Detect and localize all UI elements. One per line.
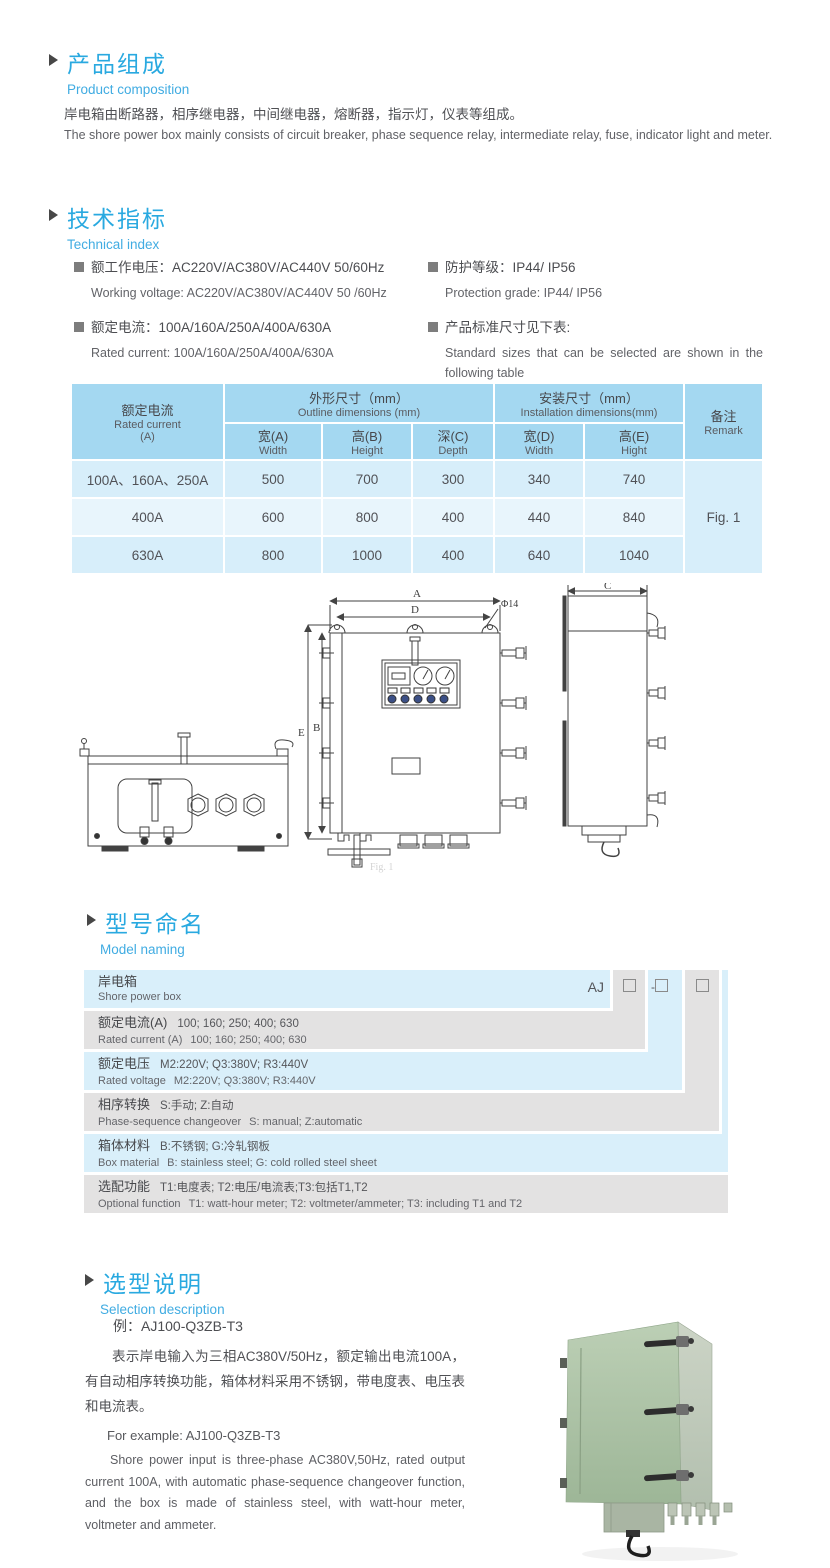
section-arrow-icon bbox=[49, 209, 58, 221]
row-label-en: Optional function bbox=[98, 1198, 181, 1210]
cell-value: 840 bbox=[584, 498, 684, 536]
spec-column-left: 额工作电压：AC220V/AC380V/AC440V 50/60Hz Worki… bbox=[74, 256, 419, 376]
naming-row-rated-current: 额定电流(A)100; 160; 250; 400; 630 Rated cur… bbox=[84, 1011, 645, 1049]
nameplate bbox=[392, 758, 420, 774]
section-title-zh: 选型说明 bbox=[103, 1265, 203, 1299]
header-en: Installation dimensions(mm) bbox=[495, 407, 683, 419]
table-row: 630A 800 1000 400 640 1040 bbox=[71, 536, 763, 574]
bottom-gland bbox=[582, 826, 626, 856]
figure-caption: Fig. 1 bbox=[370, 862, 393, 873]
row-label-en: Phase-sequence changeover bbox=[98, 1116, 241, 1128]
header-en: Height bbox=[323, 445, 411, 457]
meter-panel bbox=[382, 660, 460, 708]
model-code-prefix: AJ bbox=[570, 979, 604, 995]
dim-label-c: C bbox=[604, 583, 611, 592]
datasheet-page: 产品组成 Product composition 岸电箱由断路器，相序继电器，中… bbox=[0, 0, 830, 1568]
front-view-drawing: A D Φ14 E B bbox=[298, 588, 526, 873]
dim-label-a: A bbox=[413, 588, 421, 600]
cell-value: 300 bbox=[412, 460, 494, 498]
sub-header: 高(E)Hight bbox=[584, 423, 684, 460]
row-value-zh: M2:220V; Q3:380V; R3:440V bbox=[160, 1059, 308, 1071]
code-strip bbox=[722, 970, 728, 1134]
dim-label-dia: Φ14 bbox=[501, 599, 518, 610]
section-selection-header: 选型说明 Selection description bbox=[85, 1265, 225, 1317]
row-value-zh: B:不锈钢; G:冷轧钢板 bbox=[160, 1141, 270, 1153]
section-title-zh: 型号命名 bbox=[105, 905, 205, 939]
section-model-naming-header: 型号命名 Model naming bbox=[87, 905, 205, 957]
spec-text: 防护等级：IP44/ IP56 bbox=[445, 260, 576, 275]
col-group-installation: 安装尺寸（mm） Installation dimensions(mm) bbox=[494, 383, 684, 423]
bottom-view-drawing bbox=[80, 733, 293, 851]
code-box-icon bbox=[696, 979, 709, 992]
sub-header: 宽(D)Width bbox=[494, 423, 584, 460]
header-zh: 宽(A) bbox=[225, 426, 321, 445]
spec-item-en: Working voltage: AC220V/AC380V/AC440V 50… bbox=[91, 283, 419, 303]
cell-value: 400 bbox=[412, 536, 494, 574]
composition-body-en: The shore power box mainly consists of c… bbox=[64, 128, 784, 142]
col-group-outline: 外形尺寸（mm） Outline dimensions (mm) bbox=[224, 383, 494, 423]
section-title-en: Selection description bbox=[100, 1302, 225, 1317]
table-row: 400A 600 800 400 440 840 bbox=[71, 498, 763, 536]
model-naming-diagram: 岸电箱 Shore power box 额定电流(A)100; 160; 250… bbox=[84, 970, 728, 1213]
gauge-icon bbox=[414, 667, 432, 685]
sub-header: 宽(A)Width bbox=[224, 423, 322, 460]
clamp-icons bbox=[500, 646, 526, 810]
code-box-icon bbox=[623, 979, 636, 992]
digital-meter-icon bbox=[388, 667, 410, 685]
header-zh: 外形尺寸（mm） bbox=[225, 388, 493, 407]
technical-drawing: A D Φ14 E B bbox=[70, 583, 762, 875]
row-label-en: Shore power box bbox=[98, 990, 610, 1005]
sub-header: 高(B)Height bbox=[322, 423, 412, 460]
bottom-fittings bbox=[328, 833, 469, 867]
header-zh: 安装尺寸（mm） bbox=[495, 388, 683, 407]
bullet-square-icon bbox=[428, 322, 438, 332]
row-value-zh: 100; 160; 250; 400; 630 bbox=[177, 1018, 299, 1030]
row-label-en: Box material bbox=[98, 1157, 159, 1169]
naming-row-rated-voltage: 额定电压M2:220V; Q3:380V; R3:440V Rated volt… bbox=[84, 1052, 682, 1090]
row-label-en: Rated voltage bbox=[98, 1075, 166, 1087]
header-en: Depth bbox=[413, 445, 493, 457]
sub-header: 深(C)Depth bbox=[412, 423, 494, 460]
section-arrow-icon bbox=[49, 54, 58, 66]
section-arrow-icon bbox=[87, 914, 96, 926]
bullet-square-icon bbox=[428, 262, 438, 272]
row-value-zh: T1:电度表; T2:电压/电流表;T3:包括T1,T2 bbox=[160, 1182, 368, 1194]
row-label-zh: 相序转换 bbox=[98, 1097, 150, 1112]
spec-item-zh: 产品标准尺寸见下表: bbox=[428, 316, 762, 336]
dim-label-b: B bbox=[313, 722, 320, 734]
naming-row-optional-function: 选配功能T1:电度表; T2:电压/电流表;T3:包括T1,T2 Optiona… bbox=[84, 1175, 728, 1213]
photo-shadow bbox=[582, 1547, 738, 1561]
spec-item-en: Protection grade: IP44/ IP56 bbox=[445, 283, 762, 303]
row-label-zh: 选配功能 bbox=[98, 1179, 150, 1194]
model-code-slot-3 bbox=[696, 979, 709, 994]
spec-item-zh: 额工作电压：AC220V/AC380V/AC440V 50/60Hz bbox=[74, 256, 419, 276]
selection-body-en: Shore power input is three-phase AC380V,… bbox=[85, 1450, 465, 1536]
spec-item-en: Rated current: 100A/160A/250A/400A/630A bbox=[91, 343, 419, 363]
cell-value: 800 bbox=[322, 498, 412, 536]
indicator-lights bbox=[388, 688, 449, 703]
selection-example-en: For example: AJ100-Q3ZB-T3 bbox=[85, 1428, 465, 1443]
naming-row-product: 岸电箱 Shore power box bbox=[84, 970, 610, 1008]
selection-body-zh: 表示岸电输入为三相AC380V/50Hz，额定输出电流100A，有自动相序转换功… bbox=[85, 1344, 465, 1419]
row-label-en: Rated current (A) bbox=[98, 1034, 182, 1046]
bullet-square-icon bbox=[74, 322, 84, 332]
spec-item-en: Standard sizes that can be selected are … bbox=[445, 343, 763, 383]
door-hinge-icons bbox=[560, 1358, 567, 1488]
table-row: 100A、160A、250A 500 700 300 340 740 Fig. … bbox=[71, 460, 763, 498]
spec-text: 额工作电压：AC220V/AC380V/AC440V 50/60Hz bbox=[91, 260, 384, 275]
cell-current: 400A bbox=[71, 498, 224, 536]
gland-hex-icons bbox=[188, 794, 264, 816]
naming-row-phase-sequence: 相序转换S:手动; Z:自动 Phase-sequence changeover… bbox=[84, 1093, 719, 1131]
cell-current: 100A、160A、250A bbox=[71, 460, 224, 498]
side-view-drawing: C bbox=[563, 583, 665, 856]
cell-value: 700 bbox=[322, 460, 412, 498]
header-zh: 备注 bbox=[685, 406, 762, 425]
cell-value: 1000 bbox=[322, 536, 412, 574]
row-value-zh: S:手动; Z:自动 bbox=[160, 1100, 233, 1112]
header-en: Remark bbox=[685, 425, 762, 437]
header-unit: (A) bbox=[72, 431, 223, 443]
section-title-zh: 产品组成 bbox=[67, 45, 167, 79]
cell-value: 440 bbox=[494, 498, 584, 536]
product-photo bbox=[548, 1296, 800, 1568]
selection-text-block: 例：AJ100-Q3ZB-T3 表示岸电输入为三相AC380V/50Hz，额定输… bbox=[85, 1316, 465, 1536]
box-side-face bbox=[678, 1322, 712, 1510]
bullet-square-icon bbox=[74, 262, 84, 272]
section-title-en: Model naming bbox=[100, 942, 205, 957]
section-title-en: Technical index bbox=[67, 237, 167, 252]
cell-value: 640 bbox=[494, 536, 584, 574]
header-en: Rated current bbox=[72, 419, 223, 431]
cell-value: 500 bbox=[224, 460, 322, 498]
model-code-slot-1 bbox=[623, 979, 636, 994]
cell-value: 340 bbox=[494, 460, 584, 498]
cell-value: 740 bbox=[584, 460, 684, 498]
section-technical-header: 技术指标 Technical index bbox=[49, 200, 167, 252]
cell-value: 1040 bbox=[584, 536, 684, 574]
row-label-zh: 箱体材料 bbox=[98, 1138, 150, 1153]
row-label-zh: 额定电压 bbox=[98, 1056, 150, 1071]
row-label-zh: 岸电箱 bbox=[98, 973, 610, 990]
section-composition-header: 产品组成 Product composition bbox=[49, 45, 189, 97]
code-box-icon bbox=[655, 979, 668, 992]
row-value-en: B: stainless steel; G: cold rolled steel… bbox=[167, 1157, 377, 1169]
header-zh: 深(C) bbox=[413, 426, 493, 445]
section-arrow-icon bbox=[85, 1274, 94, 1286]
spec-text: 额定电流：100A/160A/250A/400A/630A bbox=[91, 320, 331, 335]
spec-column-right: 防护等级：IP44/ IP56 Protection grade: IP44/ … bbox=[428, 256, 762, 396]
spec-text: 产品标准尺寸见下表: bbox=[445, 320, 570, 335]
cell-current: 630A bbox=[71, 536, 224, 574]
spec-item-zh: 额定电流：100A/160A/250A/400A/630A bbox=[74, 316, 419, 336]
dim-label-d: D bbox=[411, 604, 419, 616]
header-zh: 宽(D) bbox=[495, 426, 583, 445]
section-title-en: Product composition bbox=[67, 82, 189, 97]
section-title-zh: 技术指标 bbox=[67, 200, 167, 234]
header-en: Width bbox=[225, 445, 321, 457]
hinge-icons bbox=[319, 648, 334, 808]
col-header-rated-current: 额定电流 Rated current (A) bbox=[71, 383, 224, 460]
row-value-en: M2:220V; Q3:380V; R3:440V bbox=[174, 1075, 316, 1087]
header-en: Width bbox=[495, 445, 583, 457]
selection-example-zh: 例：AJ100-Q3ZB-T3 bbox=[85, 1316, 465, 1336]
col-header-remark: 备注 Remark bbox=[684, 383, 763, 460]
row-value-en: 100; 160; 250; 400; 630 bbox=[190, 1034, 306, 1046]
spec-item-zh: 防护等级：IP44/ IP56 bbox=[428, 256, 762, 276]
cell-remark: Fig. 1 bbox=[684, 460, 763, 574]
dimensions-table: 额定电流 Rated current (A) 外形尺寸（mm） Outline … bbox=[70, 382, 764, 575]
clamp-icons bbox=[647, 613, 665, 827]
cell-value: 800 bbox=[224, 536, 322, 574]
row-value-en: S: manual; Z:automatic bbox=[249, 1116, 362, 1128]
naming-row-box-material: 箱体材料B:不锈钢; G:冷轧钢板 Box materialB: stainle… bbox=[84, 1134, 728, 1172]
gauge-icon bbox=[436, 667, 454, 685]
header-zh: 高(B) bbox=[323, 426, 411, 445]
row-label-zh: 额定电流(A) bbox=[98, 1015, 167, 1030]
cell-value: 400 bbox=[412, 498, 494, 536]
composition-body-zh: 岸电箱由断路器，相序继电器，中间继电器，熔断器，指示灯，仪表等组成。 bbox=[64, 103, 764, 123]
row-value-en: T1: watt-hour meter; T2: voltmeter/ammet… bbox=[189, 1198, 523, 1210]
model-code-slot-2: - bbox=[651, 979, 668, 994]
header-zh: 高(E) bbox=[585, 426, 683, 445]
header-en: Hight bbox=[585, 445, 683, 457]
dim-label-e: E bbox=[298, 727, 305, 739]
cell-value: 600 bbox=[224, 498, 322, 536]
header-zh: 额定电流 bbox=[72, 400, 223, 419]
header-en: Outline dimensions (mm) bbox=[225, 407, 493, 419]
